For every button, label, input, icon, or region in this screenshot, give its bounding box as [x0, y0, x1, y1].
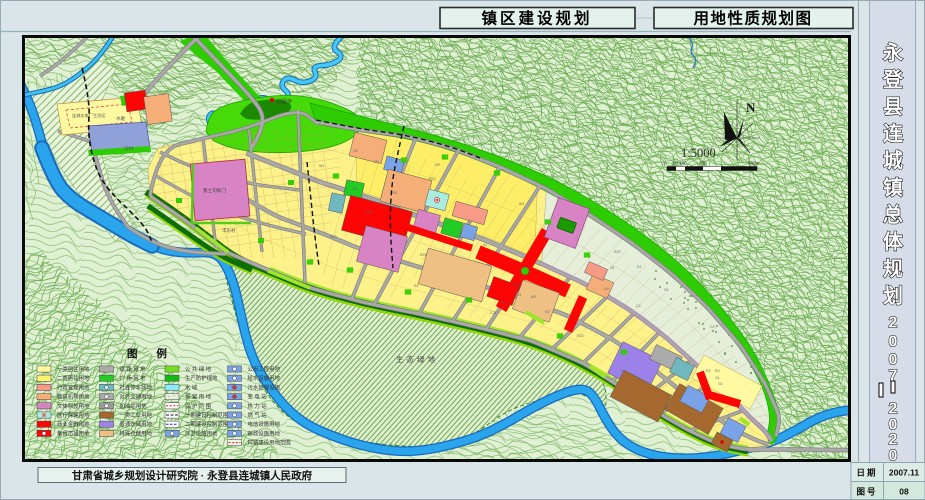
svg-text:C2: C2 — [710, 325, 715, 329]
svg-text:日期: 日期 — [856, 468, 877, 478]
svg-text:0: 0 — [889, 352, 898, 369]
svg-text:2007.11: 2007.11 — [889, 468, 920, 478]
svg-text:R22: R22 — [330, 235, 337, 239]
svg-text:广 场 用 地: 广 场 用 地 — [120, 374, 147, 382]
svg-text:社会停车场地: 社会停车场地 — [120, 383, 153, 391]
svg-text:50 100: 50 100 — [673, 161, 687, 166]
svg-text:妙因寺: 妙因寺 — [277, 98, 292, 105]
svg-text:R22: R22 — [429, 177, 436, 181]
svg-text:0: 0 — [889, 448, 898, 465]
svg-text:对外交通用地: 对外交通用地 — [120, 393, 153, 401]
svg-text:道 路 用 地: 道 路 用 地 — [120, 365, 147, 373]
svg-text:二类居住用地: 二类居住用地 — [57, 374, 90, 382]
svg-text:R21: R21 — [366, 210, 373, 214]
svg-text:邮政设施用地: 邮政设施用地 — [248, 429, 281, 437]
svg-text:08: 08 — [899, 487, 909, 497]
svg-text:W1: W1 — [519, 202, 524, 206]
svg-text:G1: G1 — [715, 376, 720, 380]
svg-text:连: 连 — [883, 122, 904, 146]
svg-text:1:5000: 1:5000 — [681, 146, 716, 160]
svg-text:燃 气 站: 燃 气 站 — [248, 411, 268, 419]
svg-text:加油站用地: 加油站用地 — [120, 402, 148, 410]
svg-text:行政管理用地: 行政管理用地 — [57, 383, 90, 391]
svg-text:登: 登 — [882, 68, 904, 92]
svg-text:环卫设施用地: 环卫设施用地 — [185, 429, 218, 437]
svg-text:集贸市场用地: 集贸市场用地 — [57, 429, 90, 437]
svg-text:G1: G1 — [664, 288, 669, 292]
svg-text:医疗保健用地: 医疗保健用地 — [57, 411, 90, 419]
svg-text:一期建设控制范围: 一期建设控制范围 — [185, 411, 228, 419]
svg-text:R2: R2 — [545, 310, 550, 314]
svg-text:一类居住用地: 一类居住用地 — [57, 365, 90, 373]
svg-text:U9: U9 — [604, 287, 609, 291]
svg-text:M1: M1 — [353, 187, 358, 191]
svg-text:预 留 用 地: 预 留 用 地 — [185, 393, 212, 401]
svg-text:镇: 镇 — [883, 176, 903, 200]
svg-text:普通仓储用地: 普通仓储用地 — [120, 420, 153, 428]
svg-text:图号: 图号 — [856, 487, 877, 497]
svg-text:R2: R2 — [706, 369, 711, 373]
svg-text:污水处理设施: 污水处理设施 — [248, 383, 281, 391]
svg-text:村镇建设用地范围: 村镇建设用地范围 — [248, 439, 291, 447]
svg-text:G1: G1 — [620, 369, 625, 373]
svg-text:M1: M1 — [374, 160, 379, 164]
svg-text:规: 规 — [883, 258, 903, 281]
svg-text:R22: R22 — [614, 250, 621, 254]
svg-text:教育机构用地: 教育机构用地 — [57, 393, 90, 401]
svg-text:甘肃省城乡规划设计研究院 · 永登县连城镇人民政府: 甘肃省城乡规划设计研究院 · 永登县连城镇人民政府 — [72, 469, 313, 482]
svg-text:公 共 绿 地: 公 共 绿 地 — [185, 365, 212, 373]
svg-text:热 力 站: 热 力 站 — [248, 402, 268, 410]
svg-text:200: 200 — [699, 161, 707, 166]
svg-text:R2: R2 — [414, 284, 419, 288]
svg-text:镇区建设规划: 镇区建设规划 — [481, 9, 592, 28]
svg-text:二期建设控制范围: 二期建设控制范围 — [185, 420, 228, 428]
svg-text:文体科技用地: 文体科技用地 — [57, 402, 90, 410]
svg-text:电信设施用地: 电信设施用地 — [248, 420, 281, 428]
svg-text:体: 体 — [883, 230, 904, 254]
svg-text:2: 2 — [889, 315, 898, 332]
svg-text:永: 永 — [882, 41, 903, 65]
svg-text:R22: R22 — [420, 253, 427, 257]
svg-text:2: 2 — [889, 401, 898, 418]
svg-text:一类工业用地: 一类工业用地 — [120, 411, 153, 419]
svg-text:图 例: 图 例 — [127, 347, 175, 360]
svg-text:特殊仓储用地: 特殊仓储用地 — [120, 429, 153, 437]
svg-text:R2: R2 — [715, 369, 720, 373]
svg-text:400m: 400m — [748, 161, 760, 166]
svg-text:生产防护绿地: 生产防护绿地 — [185, 374, 218, 382]
svg-text:鲁土司衙门: 鲁土司衙门 — [203, 187, 226, 194]
svg-text:0: 0 — [889, 334, 898, 351]
svg-text:U9: U9 — [435, 163, 440, 167]
svg-text:保 护 范 围: 保 护 范 围 — [185, 402, 211, 410]
svg-text:公用工程用地: 公用工程用地 — [248, 365, 281, 373]
svg-text:R22: R22 — [577, 334, 584, 338]
svg-text:W1: W1 — [319, 164, 324, 168]
svg-text:用地性质规划图: 用地性质规划图 — [693, 9, 812, 28]
svg-text:C21: C21 — [490, 311, 497, 315]
svg-text:G1: G1 — [610, 266, 615, 270]
svg-text:2: 2 — [889, 432, 898, 449]
svg-text:S1: S1 — [483, 243, 487, 247]
svg-text:城: 城 — [883, 149, 903, 173]
svg-text:丰乐村: 丰乐村 — [222, 227, 236, 234]
svg-text:沟村: 沟村 — [124, 145, 133, 152]
svg-text:县: 县 — [883, 97, 903, 119]
svg-text:M1: M1 — [531, 295, 536, 299]
svg-text:给水设施用地: 给水设施用地 — [248, 374, 281, 382]
svg-text:总: 总 — [883, 203, 903, 227]
svg-text:划: 划 — [883, 285, 903, 308]
svg-text:水 域: 水 域 — [185, 383, 198, 391]
svg-text:C21: C21 — [515, 293, 522, 297]
svg-text:N: N — [746, 100, 756, 115]
svg-text:C2: C2 — [636, 304, 641, 308]
svg-text:G1: G1 — [718, 382, 723, 386]
svg-text:商业金融用地: 商业金融用地 — [57, 420, 90, 428]
svg-text:水磨: 水磨 — [116, 115, 125, 122]
svg-text:变 电 站: 变 电 站 — [248, 393, 268, 401]
svg-text:U9: U9 — [353, 149, 358, 153]
svg-text:S1: S1 — [637, 265, 641, 269]
svg-text:生态绿地: 生态绿地 — [396, 354, 438, 364]
